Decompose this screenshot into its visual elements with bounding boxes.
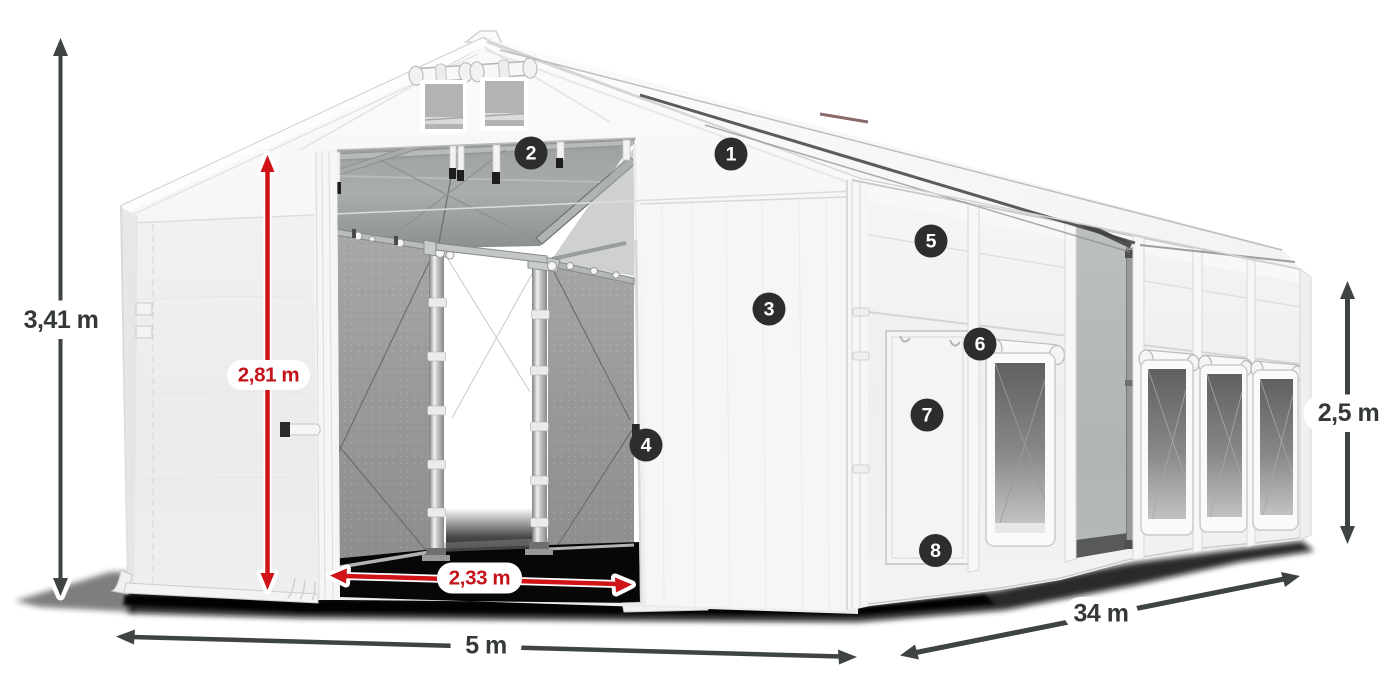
svg-text:2,33 m: 2,33 m (449, 567, 510, 590)
svg-text:7: 7 (922, 405, 933, 427)
svg-text:3,41 m: 3,41 m (24, 306, 99, 334)
svg-text:5 m: 5 m (465, 632, 507, 660)
svg-text:6: 6 (975, 334, 986, 356)
svg-text:34 m: 34 m (1074, 600, 1129, 628)
svg-text:2: 2 (526, 143, 537, 165)
svg-text:4: 4 (641, 435, 652, 457)
svg-text:2,81 m: 2,81 m (238, 364, 299, 387)
svg-text:5: 5 (926, 231, 937, 253)
svg-text:8: 8 (930, 540, 941, 562)
svg-text:1: 1 (726, 144, 737, 166)
svg-text:2,5 m: 2,5 m (1318, 399, 1379, 427)
svg-text:3: 3 (764, 299, 775, 321)
